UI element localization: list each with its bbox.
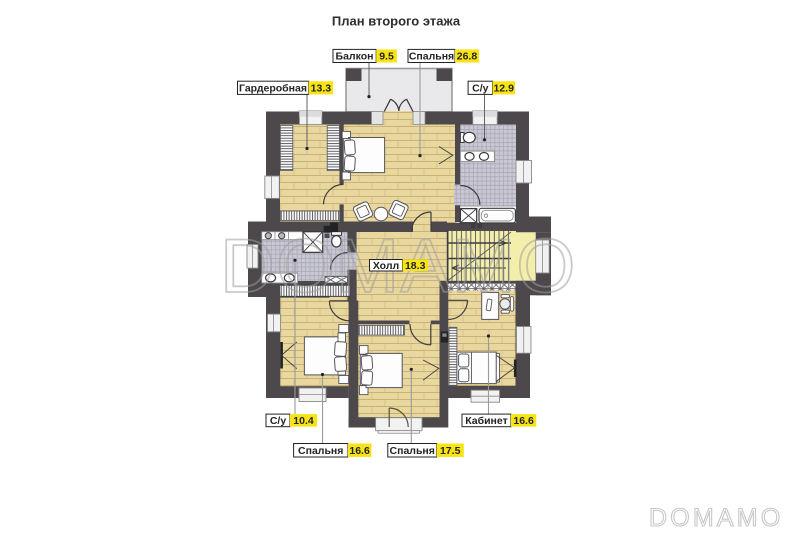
svg-text:13.3: 13.3	[311, 82, 332, 94]
svg-text:26.8: 26.8	[457, 51, 478, 63]
svg-text:9.5: 9.5	[379, 51, 394, 63]
svg-text:С/у: С/у	[270, 415, 287, 427]
svg-text:Гардеробная: Гардеробная	[239, 82, 307, 94]
svg-text:12.9: 12.9	[493, 82, 514, 94]
svg-text:Кабинет: Кабинет	[465, 415, 508, 427]
svg-text:С/у: С/у	[472, 82, 489, 94]
svg-text:Балкон: Балкон	[336, 51, 374, 63]
svg-text:16.6: 16.6	[349, 445, 370, 457]
svg-text:Холл: Холл	[373, 260, 399, 272]
svg-text:18.3: 18.3	[405, 260, 426, 272]
svg-text:Спальня: Спальня	[390, 445, 435, 457]
svg-text:План второго этажа: План второго этажа	[332, 14, 461, 29]
svg-text:17.5: 17.5	[440, 445, 461, 457]
svg-text:DOMAMO: DOMAMO	[649, 504, 783, 532]
svg-text:16.6: 16.6	[513, 415, 534, 427]
svg-text:10.4: 10.4	[293, 415, 314, 427]
svg-text:Спальня: Спальня	[409, 51, 454, 63]
svg-text:Спальня: Спальня	[298, 445, 343, 457]
